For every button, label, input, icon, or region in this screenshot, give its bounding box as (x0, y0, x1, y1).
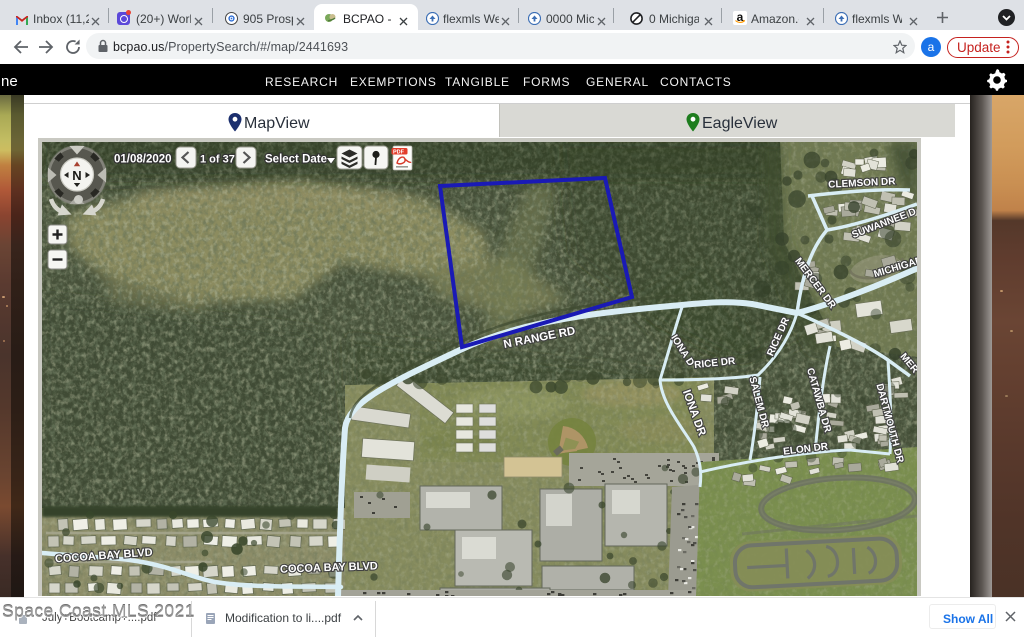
svg-text:1 of 37: 1 of 37 (200, 154, 235, 166)
svg-text:01/08/2020: 01/08/2020 (114, 154, 172, 166)
svg-text:N: N (72, 168, 81, 183)
svg-text:PDF: PDF (393, 150, 405, 156)
svg-text:Select Date: Select Date (265, 154, 327, 166)
